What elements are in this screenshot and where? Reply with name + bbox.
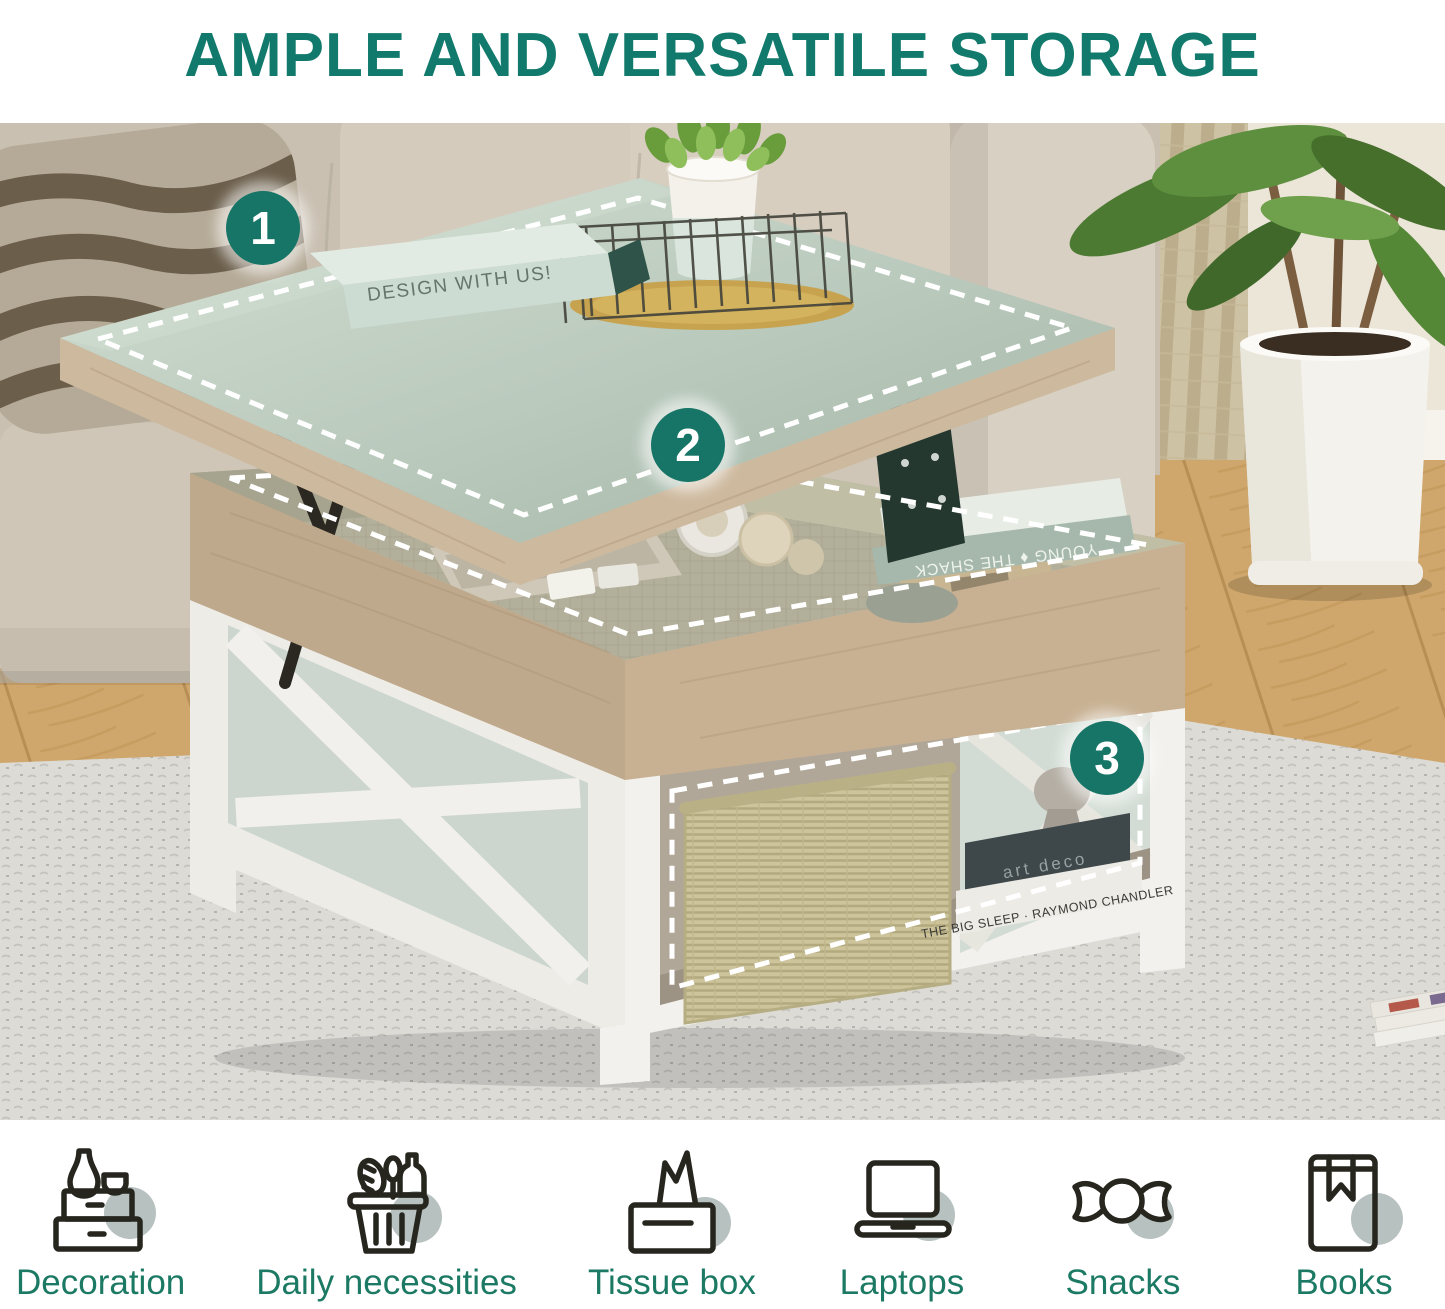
feature-decoration: Decoration <box>16 1139 185 1303</box>
badge-2: 2 <box>641 398 735 492</box>
feature-label-snacks: Snacks <box>1066 1263 1181 1303</box>
product-infographic: AMPLE AND VERSATILE STORAGE <box>0 0 1445 1309</box>
feature-daily-necessities: Daily necessities <box>256 1139 517 1303</box>
tissue-box-icon <box>597 1139 747 1261</box>
wicker-basket <box>685 768 950 1023</box>
laptop-icon <box>827 1139 977 1261</box>
badge-1-number: 1 <box>250 202 276 254</box>
feature-books: Books <box>1269 1139 1419 1303</box>
badge-3-number: 3 <box>1094 732 1120 784</box>
candy-icon <box>1048 1139 1198 1261</box>
badge-3: 3 <box>1060 711 1154 805</box>
feature-label-tissue-box: Tissue box <box>588 1263 756 1303</box>
feature-laptops: Laptops <box>827 1139 977 1303</box>
badge-1: 1 <box>216 181 310 275</box>
feature-label-daily-necessities: Daily necessities <box>256 1263 517 1303</box>
book-icon <box>1269 1139 1419 1261</box>
decoration-chest-icon <box>26 1139 176 1261</box>
product-photo: art deco THE BIG SLEEP · RAYMOND CHANDLE… <box>0 123 1445 1120</box>
page-title: AMPLE AND VERSATILE STORAGE <box>0 0 1445 110</box>
feature-tissue-box: Tissue box <box>588 1139 756 1303</box>
feature-row: Decoration Daily necessities <box>0 1128 1445 1303</box>
feature-label-books: Books <box>1295 1263 1392 1303</box>
feature-label-decoration: Decoration <box>16 1263 185 1303</box>
feature-snacks: Snacks <box>1048 1139 1198 1303</box>
feature-label-laptops: Laptops <box>840 1263 965 1303</box>
shopping-basket-icon <box>312 1139 462 1261</box>
badge-2-number: 2 <box>675 419 701 471</box>
